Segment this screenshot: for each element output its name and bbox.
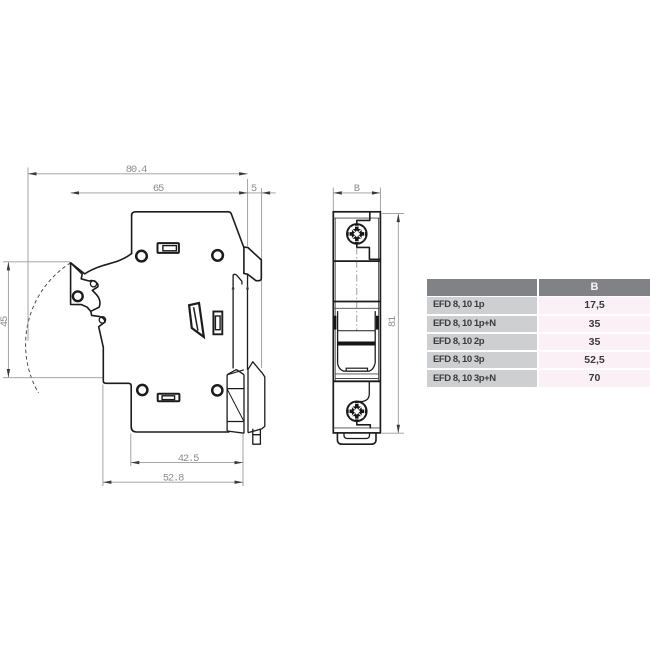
svg-text:42.5: 42.5: [178, 453, 199, 465]
svg-text:B: B: [354, 183, 360, 195]
svg-text:5: 5: [251, 183, 257, 195]
svg-text:52.8: 52.8: [163, 472, 184, 484]
svg-text:45: 45: [0, 316, 11, 327]
svg-text:80.4: 80.4: [126, 164, 147, 176]
svg-text:81: 81: [387, 316, 399, 327]
svg-text:65: 65: [153, 183, 164, 195]
